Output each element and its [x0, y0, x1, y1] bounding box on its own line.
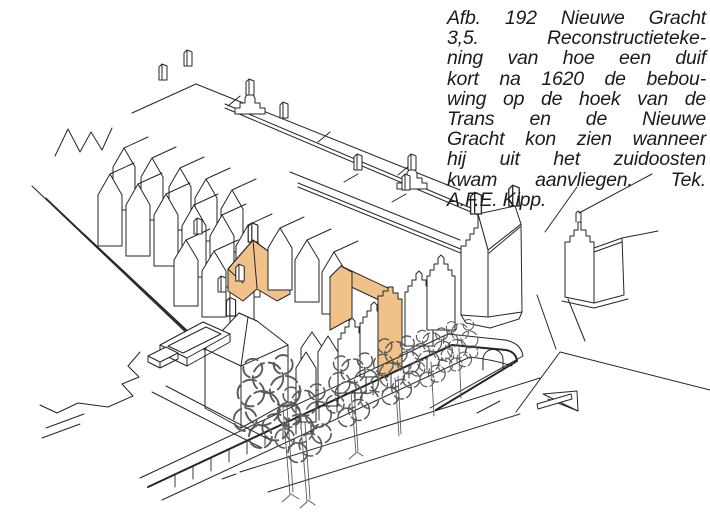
caption-line: ning van hoe een duif — [447, 48, 706, 68]
caption-line: Gracht kon zien wanneer — [447, 129, 706, 149]
caption-line: Afb. 192 Nieuwe Gracht — [447, 8, 706, 28]
caption-line: kort na 1620 de bebou- — [447, 69, 706, 89]
caption-line: hij uit het zuidoosten — [447, 149, 706, 169]
north-arrow-icon — [537, 391, 578, 411]
torn-edge — [40, 352, 140, 413]
canal-water — [42, 378, 540, 492]
caption-line: kwam aanvliegen. Tek. — [447, 170, 706, 190]
caption-line: 3,5. Reconstructieteke- — [447, 28, 706, 48]
caption-line: wing op de hoek van de — [447, 89, 706, 109]
figure-page: Afb. 192 Nieuwe Gracht 3,5. Reconstructi… — [0, 0, 710, 517]
figure-caption: Afb. 192 Nieuwe Gracht 3,5. Reconstructi… — [447, 8, 706, 210]
caption-line: Trans en de Nieuwe — [447, 109, 706, 129]
roof-valley-zigzag — [55, 128, 112, 156]
caption-line: A.F.E. Kipp. — [447, 190, 706, 210]
